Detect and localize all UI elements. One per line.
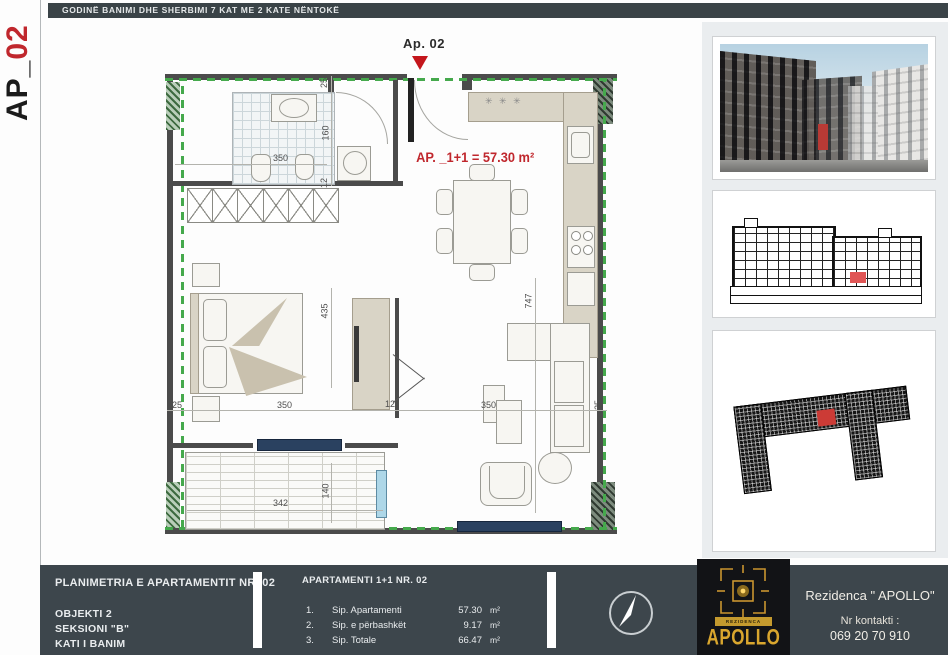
table-row-value: 9.17 <box>440 620 482 631</box>
north-arrow-icon <box>607 589 655 637</box>
dim-line-bath <box>175 164 327 165</box>
nightstand-top <box>192 263 220 287</box>
apollo-emblem-icon <box>715 563 771 619</box>
dining-chair-right-1 <box>511 189 528 215</box>
dim-160: 160 <box>321 125 331 140</box>
table-row-value: 66.47 <box>440 635 482 646</box>
dim-left-25: 25 <box>172 400 182 410</box>
residence-name: Rezidenca " APOLLO" <box>795 588 945 603</box>
wardrobe-cell <box>289 189 314 222</box>
dim-line-living <box>535 278 536 513</box>
wall-left <box>167 74 173 530</box>
dim-line-balcony <box>187 510 383 511</box>
wall-bedroom-bottom-right <box>345 443 398 448</box>
sheet-border <box>40 0 41 655</box>
titleblock-object: OBJEKTI 2 <box>55 608 112 620</box>
render-ground <box>720 160 928 172</box>
boundary-dash-left <box>181 78 184 528</box>
dim-140: 140 <box>321 483 331 498</box>
apollo-wordmark: APOLLO <box>705 625 782 651</box>
table-row-no: 3. <box>306 635 314 646</box>
dining-chair-bottom <box>469 264 495 281</box>
contact-phone: 069 20 70 910 <box>795 629 945 643</box>
contact-label: Nr kontakti : <box>795 615 945 627</box>
unit-marker-arrow-icon <box>412 56 428 70</box>
bathroom-door-arc <box>336 92 388 144</box>
wardrobe-cell <box>314 189 338 222</box>
dim-435: 435 <box>320 303 330 318</box>
nightstand-bottom <box>192 396 220 422</box>
pillow-1 <box>203 299 227 341</box>
apollo-logo-panel: REZIDENCA APOLLO <box>697 559 790 655</box>
elevation-roof-stub-2 <box>878 228 892 238</box>
dim-747: 747 <box>524 293 534 308</box>
side-tab-label: AP_02 <box>1 1 39 121</box>
vent-symbol: ✳ ✳ ✳ <box>485 96 523 107</box>
dim-living-350: 350 <box>481 400 496 410</box>
siteplan-panel <box>712 330 936 552</box>
dining-table <box>453 180 511 264</box>
side-tab-prefix: AP_ <box>1 60 34 121</box>
siteplan-highlight-unit <box>816 409 836 427</box>
elevation-panel <box>712 190 936 318</box>
building-render-panel <box>712 36 936 180</box>
tv-screen <box>354 326 359 382</box>
dim-top-12: 12 <box>319 178 329 188</box>
dim-line-vertical-bottom <box>331 463 332 523</box>
boundary-dash-right <box>603 78 606 530</box>
boundary-dash-top <box>165 78 617 81</box>
titleblock-plan-title: PLANIMETRIA E APARTAMENTIT NR. 02 <box>55 577 275 589</box>
dim-bath-350: 350 <box>273 153 288 163</box>
elevation-block-right <box>832 236 922 290</box>
titleblock-section: SEKSIONI "B" <box>55 623 129 635</box>
side-table-2 <box>496 400 522 444</box>
unit-marker-label: Ap. 02 <box>403 36 445 51</box>
table-row-label: Sip. e përbashkët <box>332 620 406 631</box>
siteplan-diagram <box>720 338 928 544</box>
kitchen-sink-basin <box>571 132 590 158</box>
sheet-title: GODINË BANIMI DHE SHERBIMI 7 KAT ME 2 KA… <box>62 5 339 15</box>
floor-plan: Ap. 02 <box>165 58 617 550</box>
wall-hatch-left-bottom <box>166 482 180 528</box>
wardrobe-cell <box>238 189 263 222</box>
wardrobe-cell <box>213 189 238 222</box>
coffee-table <box>538 452 572 484</box>
dim-342: 342 <box>273 498 288 508</box>
sofa-cushion-2 <box>554 405 584 447</box>
dim-right-25: 25 <box>593 400 603 410</box>
titleblock-floor: KATI I BANIM <box>55 638 125 650</box>
bed-headboard <box>190 293 199 394</box>
title-block: PLANIMETRIA E APARTAMENTIT NR. 02 OBJEKT… <box>40 565 948 655</box>
divider-bar-2 <box>547 572 556 648</box>
elevation-base-2 <box>730 295 922 304</box>
building-render-photo <box>720 44 928 172</box>
table-row-label: Sip. Apartamenti <box>332 605 402 616</box>
table-row-no: 2. <box>306 620 314 631</box>
oven <box>567 272 595 306</box>
armchair-seat <box>489 466 525 499</box>
table-row-unit: m² <box>490 620 500 630</box>
table-row-label: Sip. Totale <box>332 635 376 646</box>
render-red-accent <box>818 124 828 150</box>
entry-door-arc <box>414 80 468 140</box>
dining-chair-top <box>469 164 495 181</box>
drawing-sheet: GODINË BANIMI DHE SHERBIMI 7 KAT ME 2 KA… <box>0 0 950 655</box>
table-row-unit: m² <box>490 605 500 615</box>
side-tab-number: 02 <box>1 24 34 59</box>
dining-chair-left-2 <box>436 228 453 254</box>
table-row-value: 57.30 <box>440 605 482 616</box>
siteplan-building-footprint <box>733 386 914 492</box>
dim-line-vertical-top <box>331 76 332 186</box>
sheet-header-bar: GODINË BANIMI DHE SHERBIMI 7 KAT ME 2 KA… <box>48 3 948 18</box>
bathroom-sink <box>279 98 309 118</box>
dim-bed-350: 350 <box>277 400 292 410</box>
dim-line-horizontal-main <box>167 410 607 411</box>
dim-mid-12: 12 <box>385 399 395 409</box>
wardrobe <box>187 188 339 223</box>
dining-chair-left-1 <box>436 189 453 215</box>
balcony-floor <box>185 452 385 530</box>
dim-line-vertical-mid <box>331 288 332 388</box>
bidet <box>295 154 314 180</box>
apartment-area-label: AP. _1+1 = 57.30 m² <box>416 150 534 165</box>
elevation-highlight-unit <box>850 272 866 283</box>
wardrobe-cell <box>264 189 289 222</box>
toilet <box>251 154 271 182</box>
wall-hatch-left-top <box>166 82 180 130</box>
divider-bar-1 <box>253 572 262 648</box>
dining-chair-right-2 <box>511 228 528 254</box>
apartment-table-header: APARTAMENTI 1+1 NR. 02 <box>302 575 427 586</box>
stove <box>567 226 595 268</box>
elevation-roof-stub-1 <box>744 218 758 228</box>
sofa-cushion-1 <box>554 361 584 403</box>
living-radiator <box>457 521 562 532</box>
entry-door-leaf <box>408 78 414 142</box>
dim-top-25: 25 <box>319 78 329 88</box>
elevation-diagram <box>720 198 928 310</box>
render-building-white <box>872 64 928 172</box>
wall-bedroom-bottom-left <box>173 443 253 448</box>
wardrobe-cell <box>188 189 213 222</box>
table-row-no: 1. <box>306 605 314 616</box>
pillow-2 <box>203 346 227 388</box>
table-row-unit: m² <box>490 635 500 645</box>
washing-machine-drum <box>343 151 367 175</box>
wall-niche-right <box>393 80 398 184</box>
bedroom-radiator <box>257 439 342 451</box>
elevation-block-left <box>732 226 836 290</box>
